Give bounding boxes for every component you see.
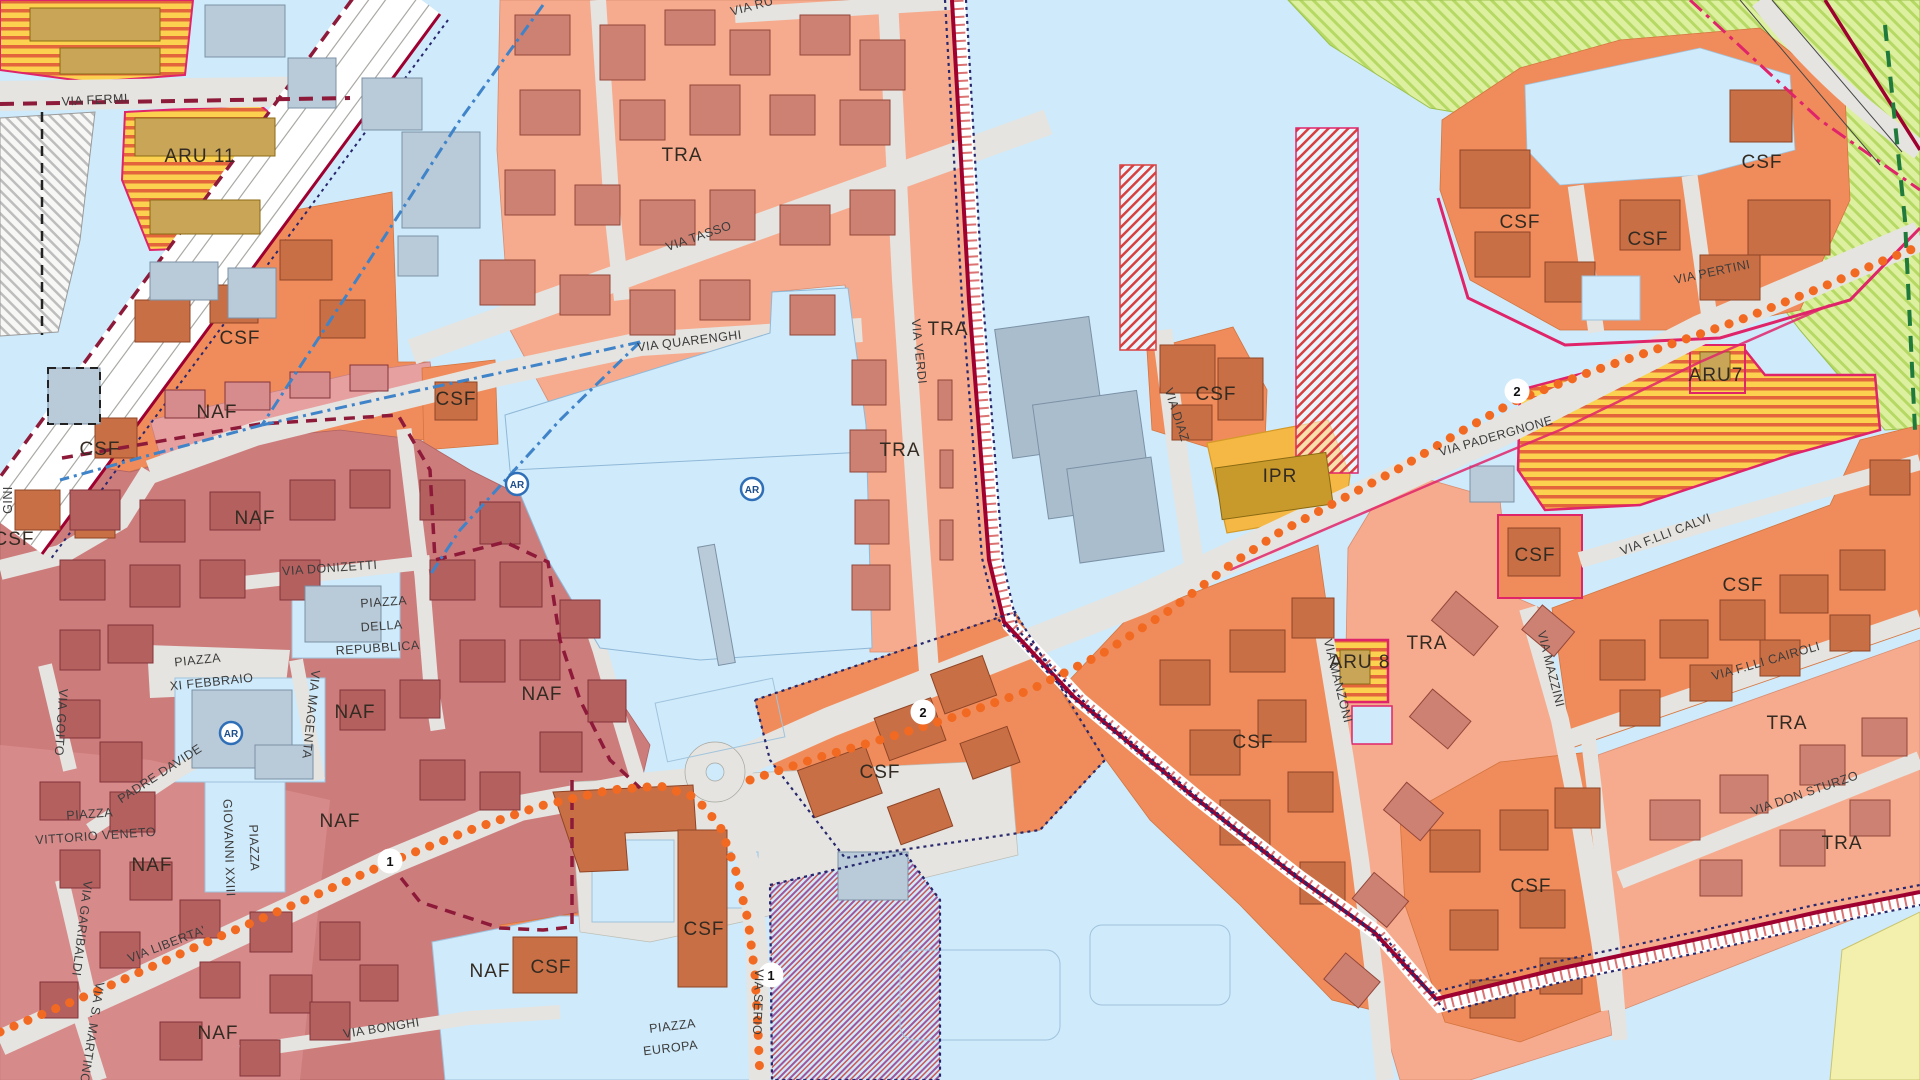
zone-label: NAF — [132, 855, 173, 876]
zone-label: CSF — [220, 328, 261, 349]
zone-label: TRA — [880, 440, 921, 461]
zone-label: ARU7 — [1689, 365, 1744, 386]
ar-marker: AR — [220, 722, 242, 744]
zone-label: CSF — [1723, 575, 1764, 596]
route2-badge: 2 — [911, 700, 935, 724]
zone-label: CSF — [1628, 229, 1669, 250]
zone-label: CSF — [1196, 384, 1237, 405]
route1-badge: 1 — [378, 849, 402, 873]
street-label: DELLA — [360, 618, 403, 635]
zone-label: CSF — [1233, 732, 1274, 753]
route2-badge: 2 — [1505, 379, 1529, 403]
zone-label: NAF — [470, 961, 511, 982]
street-label: PIAZZA — [246, 824, 262, 871]
zone-label: NAF — [198, 1023, 239, 1044]
route1-badge-label: 1 — [767, 968, 774, 983]
zone-label: CSF — [1515, 545, 1556, 566]
ar-marker-label: AR — [510, 480, 525, 491]
zone-label: CSF — [860, 762, 901, 783]
ar-marker-label: AR — [224, 729, 239, 740]
zone-label: NAF — [335, 702, 376, 723]
zone-label: CSF — [436, 389, 477, 410]
street-label: VIA SERIO — [750, 969, 766, 1036]
zone-label: CSF — [1500, 212, 1541, 233]
zone-label: NAF — [320, 811, 361, 832]
zone-label: CSF — [1742, 152, 1783, 173]
zone-label: NAF — [197, 402, 238, 423]
route2-badge-label: 2 — [1513, 384, 1520, 399]
zone-label: NAF — [235, 508, 276, 529]
zone-label: TRA — [1407, 633, 1448, 654]
zone-label: CSF — [1511, 876, 1552, 897]
ar-marker: AR — [506, 473, 528, 495]
zone-label: CSF — [80, 439, 121, 460]
zone-label: TRA — [1767, 713, 1808, 734]
zone-label: TRA — [1822, 833, 1863, 854]
zone-label: IPR — [1263, 466, 1298, 487]
zone-label: ARU 11 — [164, 146, 235, 167]
ar-marker: AR — [741, 478, 763, 500]
zone-label: TRA — [662, 145, 703, 166]
zoning-map-viewport[interactable]: AR AR AR 1 1 2 2 ARU 11 CSF CSF CSF NAF … — [0, 0, 1920, 1080]
zone-label: CSF — [0, 529, 35, 550]
route2-badge-label: 2 — [919, 705, 926, 720]
zone-label: CSF — [684, 919, 725, 940]
zone-label: TRA — [928, 319, 969, 340]
ar-marker-label: AR — [745, 485, 760, 496]
route1-badge-label: 1 — [386, 854, 393, 869]
zone-label: NAF — [522, 684, 563, 705]
zone-label: CSF — [531, 957, 572, 978]
street-label: GINI — [1, 486, 15, 514]
map-canvas[interactable]: AR AR AR 1 1 2 2 ARU 11 CSF CSF CSF NAF … — [0, 0, 1920, 1080]
